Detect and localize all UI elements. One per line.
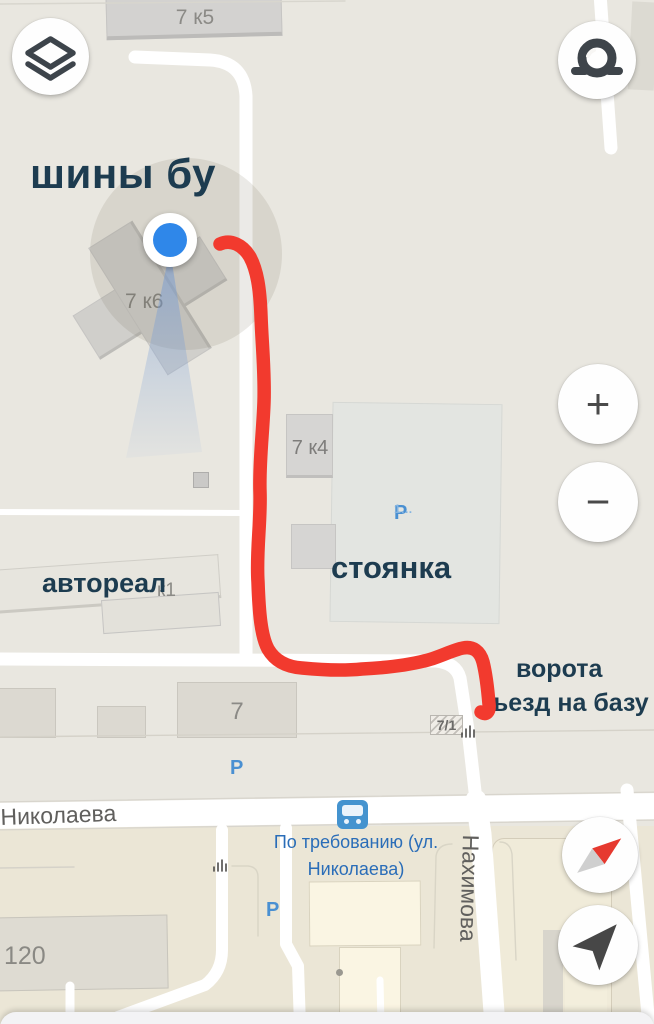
zoom-out-button[interactable]: −: [558, 462, 638, 542]
plus-icon: +: [586, 383, 611, 425]
zoom-in-button[interactable]: +: [558, 364, 638, 444]
map-canvas[interactable]: 7 к5 7 к6 7 к4 к1 7 7/1 120 Николаева На…: [0, 0, 654, 1024]
compass-needle-icon: [562, 817, 638, 893]
navigation-arrow-icon: [558, 905, 638, 985]
route-line: [0, 0, 654, 1024]
bottom-sheet[interactable]: [0, 1012, 654, 1024]
layers-button[interactable]: [12, 18, 89, 95]
location-marker: [143, 213, 197, 267]
location-dot: [153, 223, 187, 257]
compass-needle-button[interactable]: [562, 817, 638, 893]
minus-icon: −: [586, 481, 611, 523]
compass-ring-icon: [558, 21, 636, 99]
layers-icon: [12, 18, 89, 95]
locate-button[interactable]: [558, 905, 638, 985]
compass-button[interactable]: [558, 21, 636, 99]
